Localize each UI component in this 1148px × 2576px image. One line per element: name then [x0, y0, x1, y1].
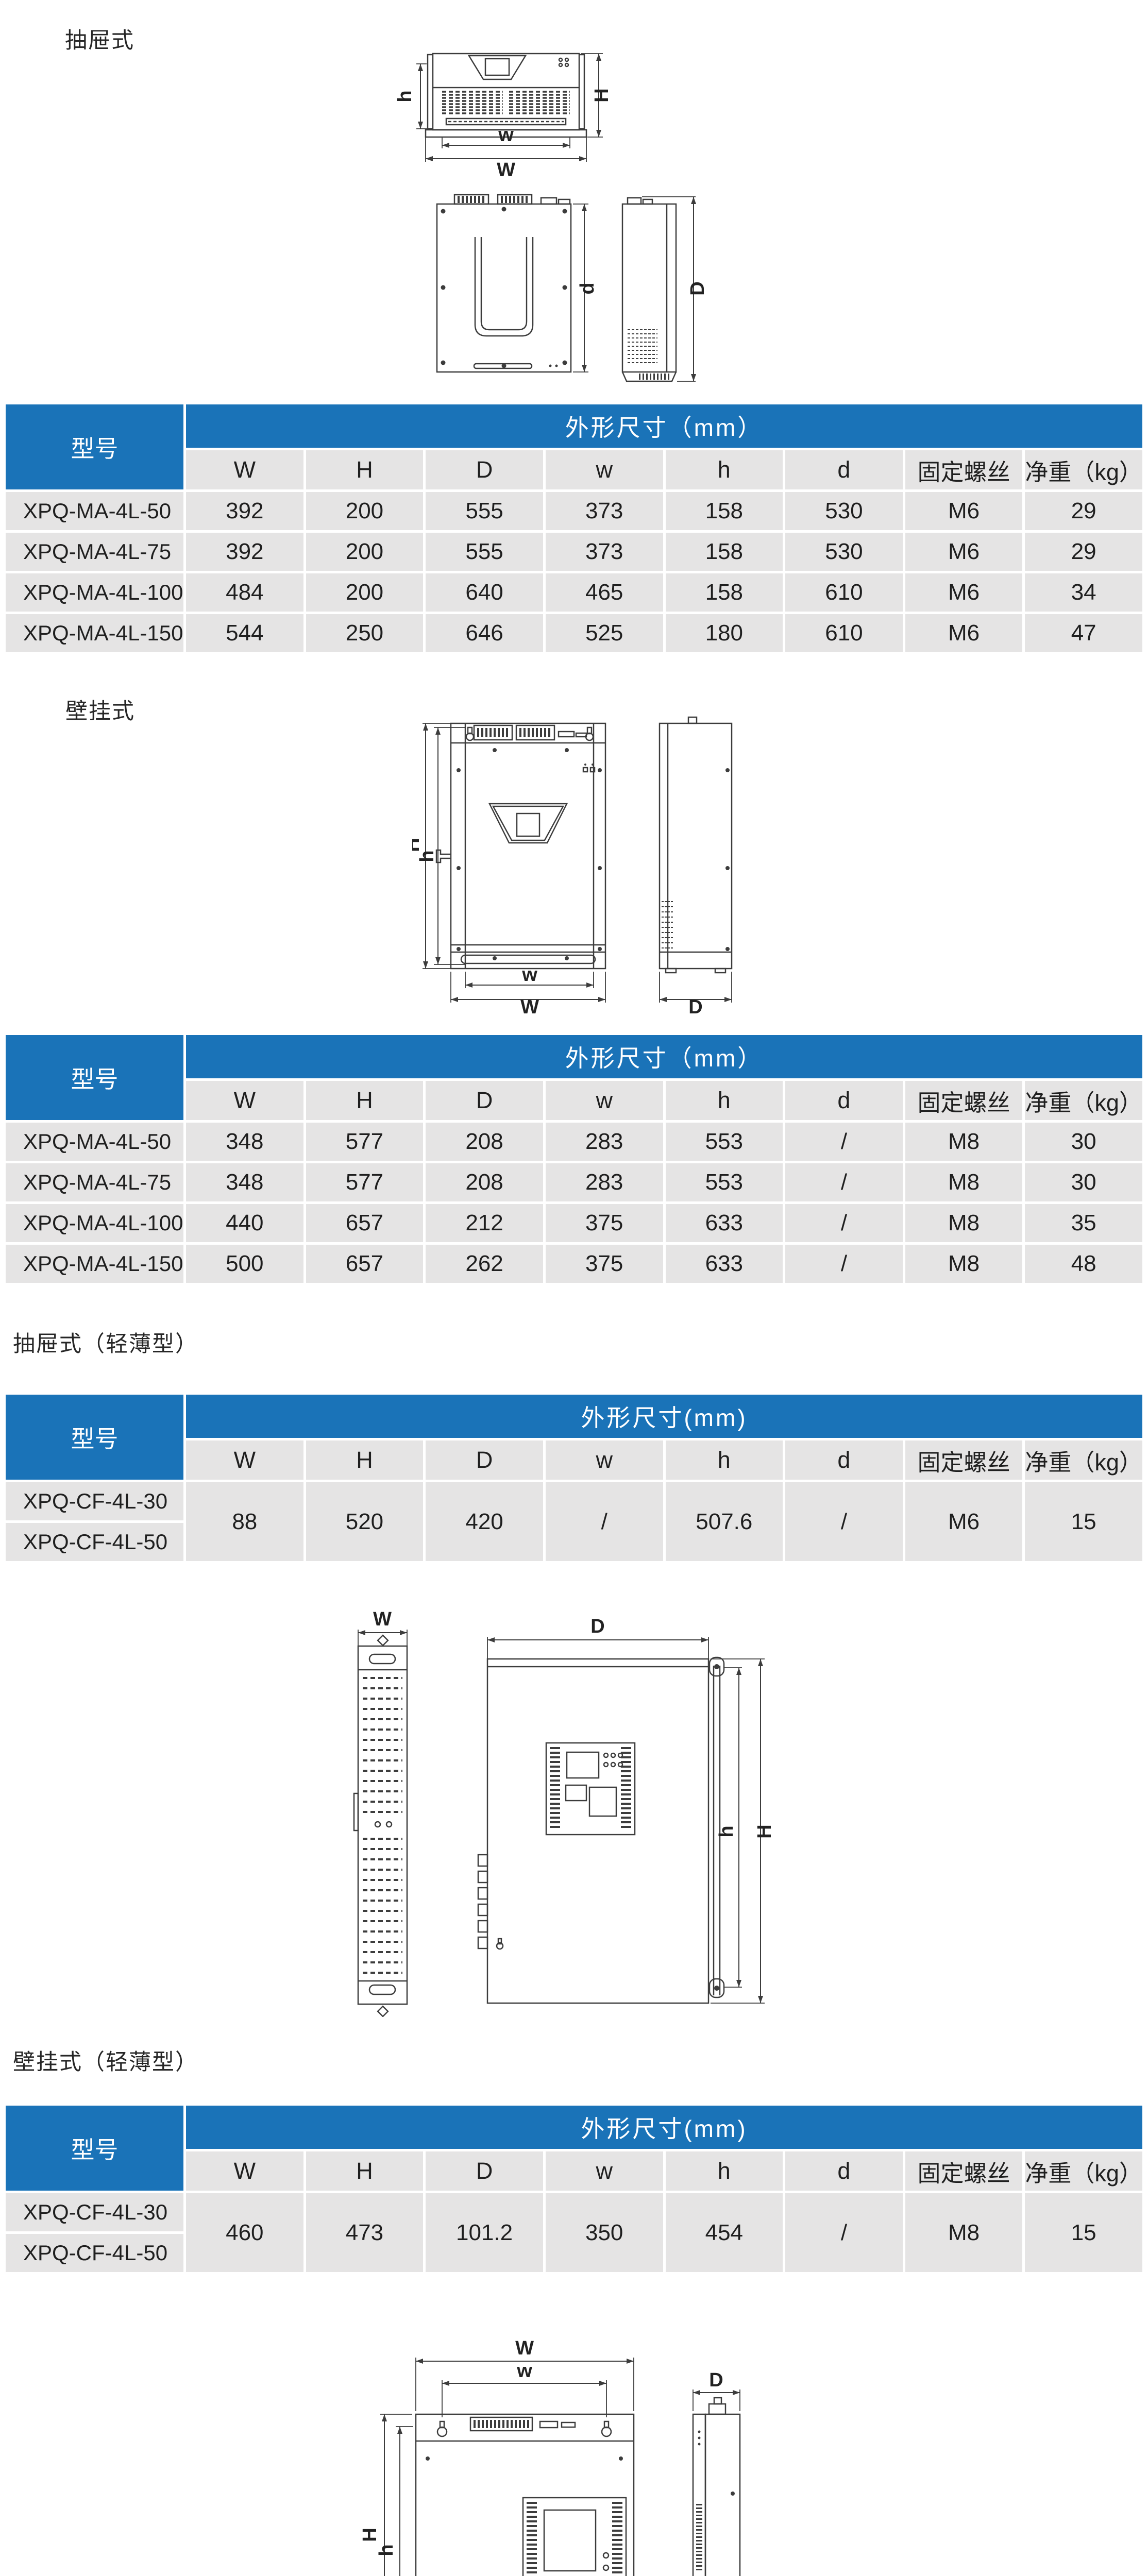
column-header: 固定螺丝 [905, 1081, 1023, 1120]
dimension-arrowhead [418, 122, 423, 129]
value-cell: 373 [546, 533, 663, 571]
side-view: D [693, 2369, 740, 2576]
model-cell: XPQ-MA-4L-100 [6, 1204, 183, 1242]
value-cell: M8 [905, 1123, 1023, 1161]
column-header: 固定螺丝 [905, 450, 1023, 489]
dim-label-D: D [590, 1616, 604, 1637]
column-header: W [186, 1440, 303, 1480]
model-column-header: 型号 [6, 2106, 183, 2191]
value-cell: 15 [1025, 2193, 1142, 2272]
value-cell: / [785, 2193, 903, 2272]
size-header: 外形尺寸（mm） [186, 404, 1142, 448]
column-header: D [426, 2151, 543, 2191]
model-column-header: 型号 [6, 1395, 183, 1480]
model-cell: XPQ-CF-4L-30 [6, 1482, 183, 1520]
dimension-arrowhead [358, 1630, 365, 1635]
dimension-arrowhead [423, 723, 428, 731]
model-cell: XPQ-MA-4L-75 [6, 1163, 183, 1201]
dim-label-w: w [521, 964, 537, 986]
dim-label-D: D [709, 2369, 723, 2391]
value-cell: 29 [1025, 492, 1142, 530]
dimension-arrowhead [598, 997, 605, 1002]
section-label-wall: 壁挂式 [65, 693, 135, 725]
drawer-slim-dimensions-table: 型号外形尺寸(mm)WHDwhd固定螺丝净重（kg）XPQ-CF-4L-3088… [3, 1392, 1145, 1564]
value-cell: 350 [546, 2193, 663, 2272]
value-cell: 101.2 [426, 2193, 543, 2272]
dim-label-D: D [687, 281, 708, 295]
table-row: XPQ-MA-4L-75348577208283553/M830 [6, 1163, 1142, 1201]
dimension-arrowhead [582, 204, 587, 211]
section-label-drawer: 抽屉式 [65, 23, 134, 55]
section-label-drawer-slim: 抽屉式（轻薄型） [13, 1326, 198, 1358]
dim-label-W: W [520, 996, 539, 1015]
value-cell: 348 [186, 1123, 303, 1161]
column-header: H [306, 2151, 424, 2191]
value-cell: 484 [186, 573, 303, 612]
value-cell: / [546, 1482, 663, 1561]
dimension-arrowhead [693, 2390, 700, 2395]
value-cell: 158 [666, 492, 783, 530]
model-cell: XPQ-CF-4L-50 [6, 2234, 183, 2272]
column-header: w [546, 450, 663, 489]
dim-label-h: h [376, 2544, 397, 2556]
value-cell: 373 [546, 492, 663, 530]
column-header: W [186, 1081, 303, 1120]
column-header: h [666, 1081, 783, 1120]
dimension-arrowhead [416, 2359, 423, 2364]
column-header: h [666, 450, 783, 489]
column-header: d [785, 450, 903, 489]
value-cell: 646 [426, 614, 543, 652]
dimension-arrowhead [736, 1980, 741, 1987]
dimension-arrowhead [586, 982, 594, 988]
value-cell: / [785, 1482, 903, 1561]
side-view: D h H [478, 1616, 775, 2003]
front-view: W [354, 1610, 407, 2016]
table-row: XPQ-MA-4L-150544250646525180610M647 [6, 614, 1142, 652]
value-cell: 88 [186, 1482, 303, 1561]
column-header: H [306, 1081, 424, 1120]
drawer-type-drawing: h H w W d [397, 46, 737, 402]
size-header: 外形尺寸(mm) [186, 1395, 1142, 1438]
dim-label-h: h [716, 1825, 737, 1837]
value-cell: M8 [905, 1245, 1023, 1283]
front-view: W w H h [361, 2337, 634, 2576]
value-cell: 530 [785, 533, 903, 571]
value-cell: 555 [426, 492, 543, 530]
value-cell: 47 [1025, 614, 1142, 652]
dim-label-H: H [591, 88, 613, 102]
value-cell: 200 [306, 533, 424, 571]
value-cell: 283 [546, 1123, 663, 1161]
value-cell: 392 [186, 533, 303, 571]
value-cell: 29 [1025, 533, 1142, 571]
dimension-arrowhead [691, 374, 696, 381]
size-header: 外形尺寸（mm） [186, 1035, 1142, 1078]
front-view: h H w W [397, 54, 613, 181]
value-cell: 454 [666, 2193, 783, 2272]
dimension-arrowhead [596, 54, 601, 61]
dimension-arrowhead [596, 130, 601, 137]
value-cell: 473 [306, 2193, 424, 2272]
dimension-arrowhead [442, 143, 449, 148]
value-cell: 283 [546, 1163, 663, 1201]
value-cell: 657 [306, 1204, 424, 1242]
value-cell: 15 [1025, 1482, 1142, 1561]
table-row: XPQ-MA-4L-75392200555373158530M629 [6, 533, 1142, 571]
value-cell: / [785, 1163, 903, 1201]
table-row: XPQ-CF-4L-30460473101.2350454/M815 [6, 2193, 1142, 2231]
column-header: 固定螺丝 [905, 2151, 1023, 2191]
model-cell: XPQ-MA-4L-50 [6, 1123, 183, 1161]
value-cell: M6 [905, 492, 1023, 530]
dimension-arrowhead [627, 2359, 634, 2364]
value-cell: 48 [1025, 1245, 1142, 1283]
dimension-arrowhead [563, 143, 570, 148]
dimension-arrowhead [758, 1659, 763, 1666]
model-cell: XPQ-CF-4L-30 [6, 2193, 183, 2231]
model-cell: XPQ-MA-4L-75 [6, 533, 183, 571]
column-header: W [186, 450, 303, 489]
dimension-arrowhead [599, 2381, 606, 2386]
size-header: 外形尺寸(mm) [186, 2106, 1142, 2149]
dim-label-w: w [498, 124, 514, 146]
column-header: 净重（kg） [1025, 1081, 1142, 1120]
dimension-arrowhead [400, 1630, 407, 1635]
value-cell: 420 [426, 1482, 543, 1561]
value-cell: M8 [905, 2193, 1023, 2272]
value-cell: 633 [666, 1204, 783, 1242]
column-header: 净重（kg） [1025, 450, 1142, 489]
value-cell: 500 [186, 1245, 303, 1283]
value-cell: 208 [426, 1123, 543, 1161]
dimension-arrowhead [426, 156, 433, 161]
column-header: D [426, 1081, 543, 1120]
dimension-arrowhead [579, 156, 586, 161]
dimension-arrowhead [423, 961, 428, 969]
value-cell: 610 [785, 573, 903, 612]
model-cell: XPQ-MA-4L-150 [6, 614, 183, 652]
dim-label-W: W [373, 1610, 392, 1630]
value-cell: 348 [186, 1163, 303, 1201]
dimension-arrowhead [435, 727, 441, 735]
value-cell: 250 [306, 614, 424, 652]
dimension-arrowhead [691, 197, 696, 204]
value-cell: M6 [905, 533, 1023, 571]
column-header: D [426, 1440, 543, 1480]
value-cell: 507.6 [666, 1482, 783, 1561]
value-cell: 375 [546, 1204, 663, 1242]
dim-label-H: H [361, 2528, 381, 2541]
table-row: XPQ-MA-4L-150500657262375633/M848 [6, 1245, 1142, 1283]
value-cell: / [785, 1245, 903, 1283]
value-cell: 158 [666, 533, 783, 571]
value-cell: 577 [306, 1123, 424, 1161]
dimension-arrowhead [397, 2427, 402, 2434]
value-cell: 200 [306, 573, 424, 612]
dim-label-W: W [497, 159, 515, 181]
section-label-wall-slim: 壁挂式（轻薄型） [13, 2044, 198, 2076]
value-cell: 375 [546, 1245, 663, 1283]
model-column-header: 型号 [6, 404, 183, 489]
table-row: XPQ-MA-4L-100484200640465158610M634 [6, 573, 1142, 612]
value-cell: / [785, 1123, 903, 1161]
value-cell: 180 [666, 614, 783, 652]
column-header: d [785, 1081, 903, 1120]
value-cell: 525 [546, 614, 663, 652]
value-cell: 262 [426, 1245, 543, 1283]
dim-label-H: H [412, 838, 424, 852]
dimension-arrowhead [724, 997, 732, 1002]
value-cell: 610 [785, 614, 903, 652]
column-header: d [785, 1440, 903, 1480]
dimension-arrowhead [582, 365, 587, 372]
model-cell: XPQ-CF-4L-50 [6, 1523, 183, 1561]
wall-slim-dimensions-table: 型号外形尺寸(mm)WHDwhd固定螺丝净重（kg）XPQ-CF-4L-3046… [3, 2103, 1145, 2275]
table-row: XPQ-CF-4L-3088520420/507.6/M615 [6, 1482, 1142, 1520]
column-header: H [306, 1440, 424, 1480]
value-cell: / [785, 1204, 903, 1242]
value-cell: 465 [546, 573, 663, 612]
dim-label-h: h [416, 850, 438, 862]
column-header: w [546, 2151, 663, 2191]
dimension-arrowhead [487, 1637, 495, 1642]
value-cell: 212 [426, 1204, 543, 1242]
dimension-arrowhead [418, 64, 423, 71]
column-header: w [546, 1081, 663, 1120]
wall-dimensions-table: 型号外形尺寸（mm）WHDwhd固定螺丝净重（kg）XPQ-MA-4L-5034… [3, 1032, 1145, 1285]
dimension-arrowhead [736, 1668, 741, 1675]
wall-slim-drawing: W w H h D [361, 2329, 794, 2576]
value-cell: M6 [905, 614, 1023, 652]
value-cell: 34 [1025, 573, 1142, 612]
dimension-arrowhead [660, 997, 667, 1002]
value-cell: 440 [186, 1204, 303, 1242]
dim-label-h: h [397, 90, 416, 102]
model-cell: XPQ-MA-4L-100 [6, 573, 183, 612]
dimension-arrowhead [382, 2414, 387, 2421]
value-cell: 460 [186, 2193, 303, 2272]
top-view: d [437, 195, 598, 372]
value-cell: 544 [186, 614, 303, 652]
value-cell: 30 [1025, 1163, 1142, 1201]
value-cell: 640 [426, 573, 543, 612]
value-cell: 200 [306, 492, 424, 530]
side-view: D [622, 197, 708, 381]
column-header: W [186, 2151, 303, 2191]
value-cell: 577 [306, 1163, 424, 1201]
value-cell: 35 [1025, 1204, 1142, 1242]
value-cell: M6 [905, 573, 1023, 612]
column-header: d [785, 2151, 903, 2191]
value-cell: M6 [905, 1482, 1023, 1561]
column-header: 净重（kg） [1025, 2151, 1142, 2191]
wall-type-drawing: H h w W D [412, 716, 752, 1015]
dimension-arrowhead [758, 1996, 763, 2003]
value-cell: 208 [426, 1163, 543, 1201]
value-cell: 530 [785, 492, 903, 530]
table-row: XPQ-MA-4L-50348577208283553/M830 [6, 1123, 1142, 1161]
table-row: XPQ-MA-4L-100440657212375633/M835 [6, 1204, 1142, 1242]
dim-label-d: d [577, 282, 598, 294]
value-cell: 520 [306, 1482, 424, 1561]
dimension-arrowhead [451, 997, 458, 1002]
front-view: H h w W [412, 723, 605, 1015]
value-cell: M8 [905, 1163, 1023, 1201]
dimension-arrowhead [701, 1637, 708, 1642]
value-cell: M8 [905, 1204, 1023, 1242]
value-cell: 657 [306, 1245, 424, 1283]
model-cell: XPQ-MA-4L-50 [6, 492, 183, 530]
dimension-arrowhead [435, 957, 441, 964]
table-row: XPQ-MA-4L-50392200555373158530M629 [6, 492, 1142, 530]
dimension-arrowhead [465, 982, 472, 988]
value-cell: 553 [666, 1163, 783, 1201]
dim-label-D: D [688, 996, 702, 1015]
column-header: h [666, 1440, 783, 1480]
drawer-slim-drawing: W D h H [330, 1610, 783, 2017]
dim-label-w: w [516, 2360, 532, 2382]
value-cell: 553 [666, 1123, 783, 1161]
column-header: 固定螺丝 [905, 1440, 1023, 1480]
model-cell: XPQ-MA-4L-150 [6, 1245, 183, 1283]
column-header: H [306, 450, 424, 489]
model-column-header: 型号 [6, 1035, 183, 1120]
dim-label-H: H [754, 1824, 775, 1838]
value-cell: 392 [186, 492, 303, 530]
dim-label-W: W [515, 2337, 534, 2359]
column-header: w [546, 1440, 663, 1480]
value-cell: 633 [666, 1245, 783, 1283]
column-header: 净重（kg） [1025, 1440, 1142, 1480]
drawer-dimensions-table: 型号外形尺寸（mm）WHDwhd固定螺丝净重（kg）XPQ-MA-4L-5039… [3, 402, 1145, 655]
value-cell: 555 [426, 533, 543, 571]
dimension-arrowhead [442, 2381, 449, 2386]
value-cell: 30 [1025, 1123, 1142, 1161]
side-view: D [660, 717, 732, 1015]
dimension-arrowhead [733, 2390, 740, 2395]
column-header: D [426, 450, 543, 489]
column-header: h [666, 2151, 783, 2191]
value-cell: 158 [666, 573, 783, 612]
